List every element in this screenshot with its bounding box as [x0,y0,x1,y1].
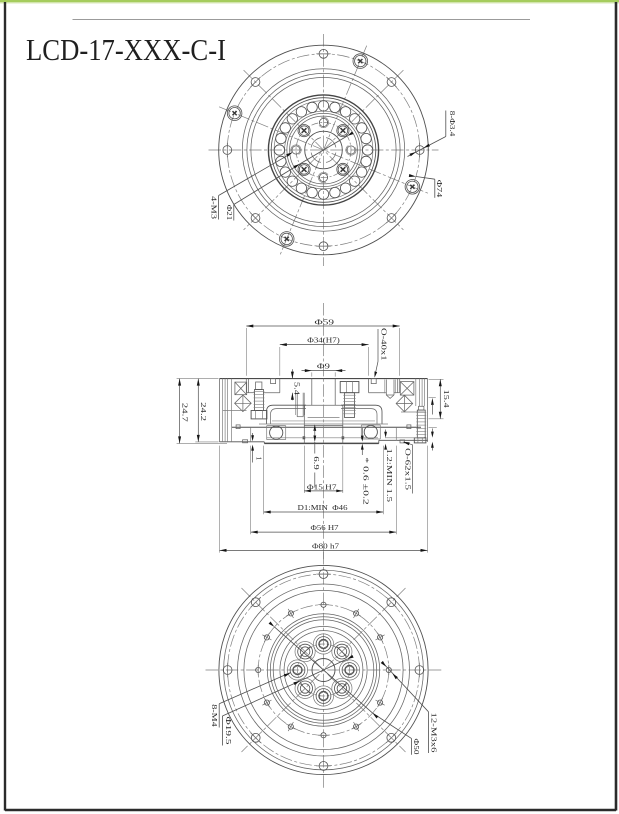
svg-text:24.7: 24.7 [181,403,190,422]
svg-text:6.9: 6.9 [312,456,321,470]
svg-text:8-Φ3.4: 8-Φ3.4 [448,111,457,137]
svg-text:1.2:MIN 1.5: 1.2:MIN 1.5 [385,448,394,502]
svg-text:Φ59: Φ59 [315,317,335,326]
svg-text:Φ56 H7: Φ56 H7 [311,523,339,532]
svg-text:Φ19.5: Φ19.5 [224,717,233,745]
svg-text:5.4: 5.4 [293,382,302,395]
svg-text:Φ9: Φ9 [317,361,330,370]
svg-text:Φ34(H7): Φ34(H7) [307,336,340,345]
svg-text:Φ50: Φ50 [412,739,421,755]
svg-text:O-40x1: O-40x1 [380,328,389,361]
svg-text:O-62x1.5: O-62x1.5 [404,448,413,490]
svg-text:Φ21: Φ21 [225,205,234,221]
svg-text:15.4: 15.4 [442,390,451,408]
svg-text:Φ15 H7: Φ15 H7 [307,482,337,491]
svg-text:12-M3x6: 12-M3x6 [430,713,439,753]
svg-text:Φ74: Φ74 [435,180,444,198]
svg-text:Φ80 h7: Φ80 h7 [312,542,339,551]
svg-text:24.2: 24.2 [199,402,208,421]
svg-text:LCD-17-XXX-C-I: LCD-17-XXX-C-I [26,32,226,67]
svg-text:1: 1 [254,456,263,460]
svg-text:* 0.6 ±0.2: * 0.6 ±0.2 [362,457,371,505]
svg-text:D1:MIN Φ46: D1:MIN Φ46 [298,503,348,512]
svg-text:4-M3: 4-M3 [210,196,219,219]
svg-text:8-M4: 8-M4 [210,704,219,727]
